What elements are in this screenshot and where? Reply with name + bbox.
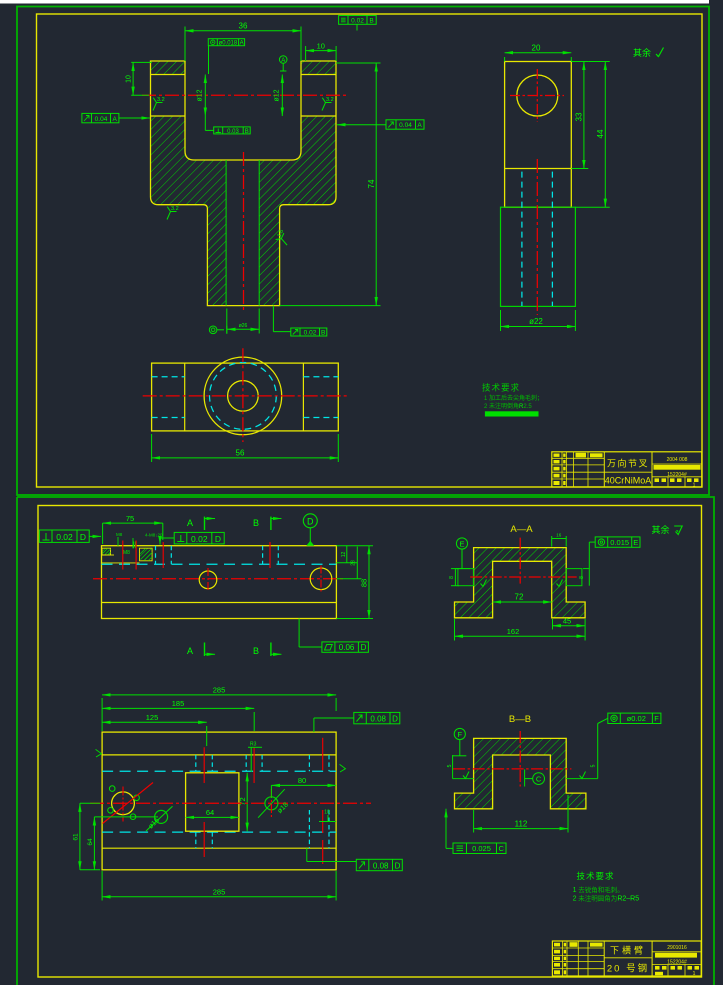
svg-text:A—A: A—A [510, 524, 533, 535]
svg-text:ø12: ø12 [274, 89, 281, 101]
svg-text:D: D [361, 643, 367, 652]
svg-text:185: 185 [172, 699, 185, 708]
svg-text:0.06: 0.06 [339, 643, 355, 652]
svg-text:0.08: 0.08 [373, 862, 389, 871]
svg-text:152204#: 152204# [667, 960, 687, 966]
svg-text:285: 285 [213, 686, 226, 695]
svg-text:40CrNiMoA: 40CrNiMoA [605, 476, 652, 486]
svg-text:162: 162 [507, 627, 520, 636]
svg-text:0.02: 0.02 [304, 330, 317, 337]
svg-text:0.025: 0.025 [472, 844, 491, 853]
svg-text:D: D [392, 715, 398, 724]
svg-text:44: 44 [596, 129, 605, 138]
svg-text:2 未注明圆角为R2–R5: 2 未注明圆角为R2–R5 [573, 893, 640, 902]
svg-text:ø26: ø26 [239, 323, 248, 329]
svg-text:12: 12 [341, 552, 347, 558]
svg-text:ø0.018: ø0.018 [219, 41, 238, 47]
svg-text:33: 33 [575, 112, 584, 121]
svg-text:A: A [240, 41, 244, 47]
svg-text:E: E [633, 538, 638, 547]
svg-text:125: 125 [146, 713, 159, 722]
svg-text:3.2: 3.2 [326, 97, 334, 103]
svg-text:C: C [536, 775, 542, 784]
svg-text:B: B [321, 330, 325, 337]
svg-text:0.02: 0.02 [191, 534, 208, 544]
svg-text:D: D [395, 862, 401, 871]
svg-text:E: E [459, 540, 464, 549]
svg-text:0.02: 0.02 [351, 18, 364, 25]
svg-text:2 未注明倒角R2.5: 2 未注明倒角R2.5 [484, 402, 532, 410]
svg-text:F: F [654, 714, 659, 723]
svg-text:ø0.02: ø0.02 [627, 714, 646, 723]
svg-text:56: 56 [236, 449, 245, 458]
svg-text:B: B [253, 646, 259, 656]
svg-text:F: F [458, 730, 463, 739]
svg-text:112: 112 [515, 819, 528, 828]
svg-text:152204#: 152204# [667, 472, 687, 478]
svg-text:A: A [281, 58, 285, 64]
svg-text:A: A [187, 518, 193, 528]
svg-text:D: D [80, 532, 86, 542]
svg-text:64: 64 [206, 808, 214, 817]
svg-text:D: D [215, 534, 221, 544]
svg-text:5: 5 [591, 764, 597, 767]
svg-text:ø22: ø22 [529, 317, 543, 326]
svg-text:M8: M8 [123, 550, 130, 556]
svg-text:0.04: 0.04 [95, 116, 108, 123]
svg-text:45: 45 [563, 616, 571, 625]
svg-text:1: 1 [693, 971, 696, 977]
svg-text:B—B: B—B [509, 714, 531, 725]
svg-text:28: 28 [351, 560, 357, 566]
svg-text:72: 72 [515, 593, 524, 602]
svg-text:其余: 其余 [652, 524, 670, 535]
svg-text:B: B [245, 129, 249, 135]
svg-text:R3: R3 [250, 742, 257, 748]
svg-text:10: 10 [324, 810, 330, 816]
svg-text:0.03: 0.03 [227, 129, 239, 135]
svg-text:技术要求: 技术要求 [482, 383, 520, 393]
svg-text:285: 285 [213, 888, 226, 897]
svg-text:72: 72 [238, 797, 247, 805]
svg-text:8: 8 [449, 576, 455, 579]
svg-text:下横臂: 下横臂 [610, 945, 646, 956]
svg-text:10: 10 [317, 41, 325, 50]
svg-text:2004 008: 2004 008 [667, 457, 688, 463]
svg-text:ø12: ø12 [197, 89, 204, 101]
svg-text:8: 8 [579, 576, 585, 579]
svg-text:1: 1 [693, 483, 696, 489]
svg-text:1 加工后去尖角毛刺；: 1 加工后去尖角毛刺； [484, 394, 543, 402]
svg-text:0.08: 0.08 [370, 715, 386, 724]
svg-text:A: A [113, 116, 118, 123]
svg-text:0.04: 0.04 [399, 122, 412, 129]
svg-text:0.02: 0.02 [56, 532, 73, 542]
svg-text:0.015: 0.015 [610, 538, 629, 547]
svg-text:20: 20 [532, 43, 541, 52]
svg-text:其余: 其余 [633, 47, 651, 58]
svg-text:A: A [187, 646, 193, 656]
svg-text:技术要求: 技术要求 [577, 871, 615, 881]
svg-text:36: 36 [239, 22, 248, 31]
svg-text:80: 80 [298, 776, 306, 785]
svg-text:3.2: 3.2 [171, 206, 179, 212]
svg-text:1 去锐角和毛刺。: 1 去锐角和毛刺。 [573, 885, 624, 894]
svg-text:B: B [253, 518, 259, 528]
svg-text:75: 75 [126, 514, 134, 523]
svg-text:5: 5 [447, 764, 453, 767]
svg-text:74: 74 [367, 179, 376, 188]
svg-text:10: 10 [126, 75, 133, 83]
svg-text:4-M8↓20: 4-M8↓20 [145, 533, 163, 538]
svg-text:A: A [417, 122, 422, 129]
svg-text:88: 88 [359, 579, 368, 587]
svg-text:万向节叉: 万向节叉 [607, 458, 649, 469]
svg-text:64: 64 [87, 838, 94, 846]
svg-text:C: C [498, 844, 504, 853]
svg-text:M8: M8 [116, 532, 123, 537]
svg-text:20 号钢: 20 号钢 [607, 963, 649, 975]
svg-text:B: B [369, 18, 373, 25]
svg-text:16: 16 [556, 533, 562, 538]
svg-text:61: 61 [73, 833, 80, 841]
svg-text:3.2: 3.2 [157, 97, 165, 103]
svg-text:D: D [307, 516, 314, 526]
svg-text:2901016: 2901016 [667, 945, 687, 951]
